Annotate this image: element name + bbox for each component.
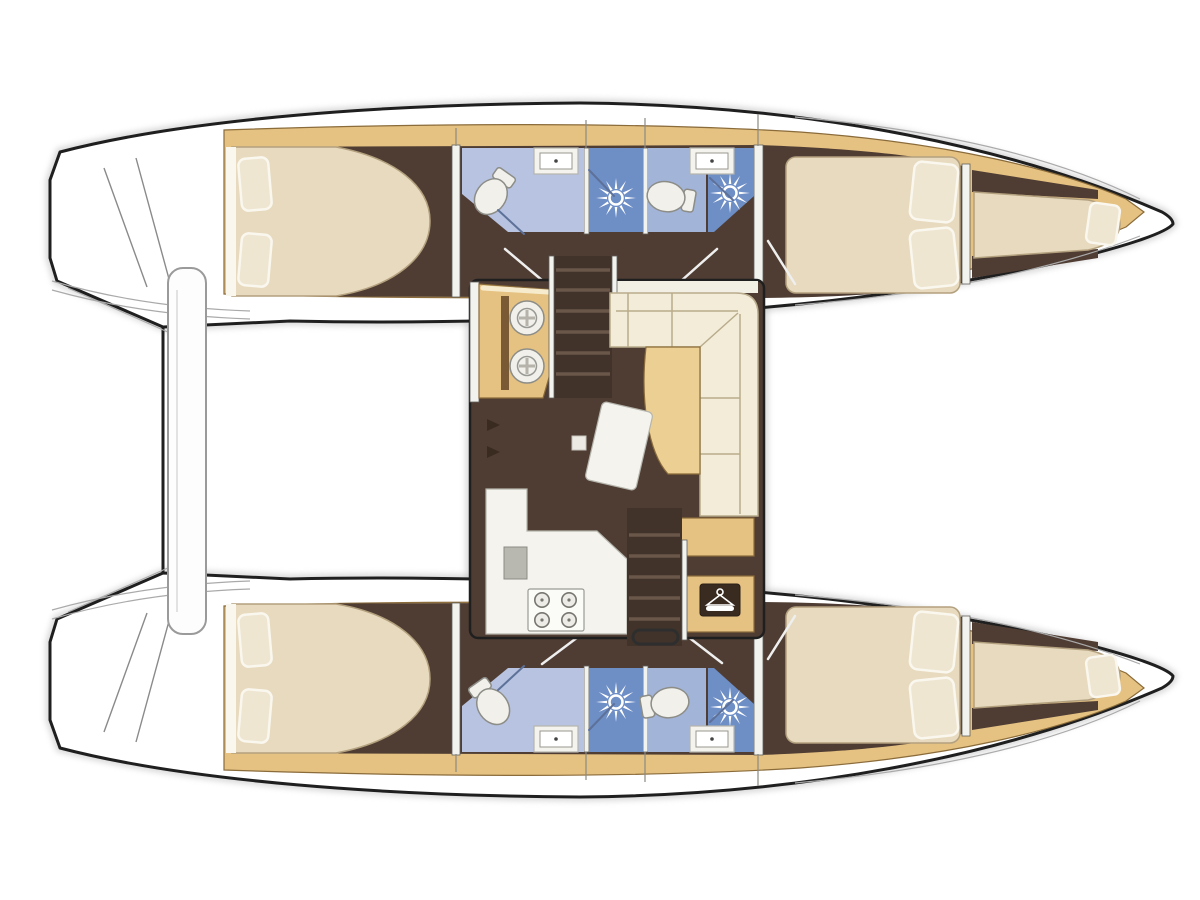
lower-aft-bed-sheet [226,604,236,753]
saloon-left-wall [470,282,479,402]
lower-wall-aft-cabin [452,603,460,755]
galley-drawer-strip [501,296,509,390]
upper-companionway-steps [554,256,612,398]
washbasin [690,148,734,174]
upper-aft-pillow-1 [238,157,272,211]
stove-burner-dot [567,618,570,621]
round-sink [510,349,544,383]
lower-fwd-pillow-1 [909,677,959,739]
saloon [470,256,764,646]
lower-companionway-wall-right [682,540,687,640]
round-sink [510,301,544,335]
lower-head1-shower [589,668,643,752]
upper-fwd-pillow-1 [909,161,959,223]
wardrobe-upper [678,518,754,556]
upper-wall-aft-cabin [452,145,460,297]
stove-burner-dot [540,618,543,621]
clothes-hanger-icon [700,584,740,616]
stern-deck-planking [52,281,250,619]
aft-platform-inner-line [68,288,170,612]
catamaran-layout-diagram [0,0,1200,900]
boat-plan-svg [0,0,1200,900]
lower-aft-pillow-1 [238,689,272,743]
upper-aft-pillow-2 [238,233,272,287]
galley-square-sink [504,547,527,579]
washbasin [690,726,734,752]
upper-wall-fwd-cabin [754,145,763,297]
upper-aft-bed-sheet [226,147,236,296]
lower-bow-pillow [1085,654,1120,698]
washbasin [534,726,578,752]
lower-fwd-pillow-2 [909,611,959,673]
lower-wall-bow [962,616,970,736]
lower-wall-head1-shower [584,666,589,752]
cockpit-bench [168,268,206,634]
upper-fwd-pillow-2 [909,227,959,289]
stove-burner-dot [567,598,570,601]
upper-bow-pillow [1085,202,1120,246]
lower-aft-pillow-2 [238,613,272,667]
upper-wall-head1-shower [584,148,589,234]
saloon-forward-window-ledge [606,281,758,293]
washbasin [534,148,578,174]
chart-stool [572,436,586,450]
stove-burner-dot [540,598,543,601]
upper-head1-shower [589,148,643,232]
upper-wall-bow [962,164,970,284]
upper-companionway-wall-left [549,256,554,398]
